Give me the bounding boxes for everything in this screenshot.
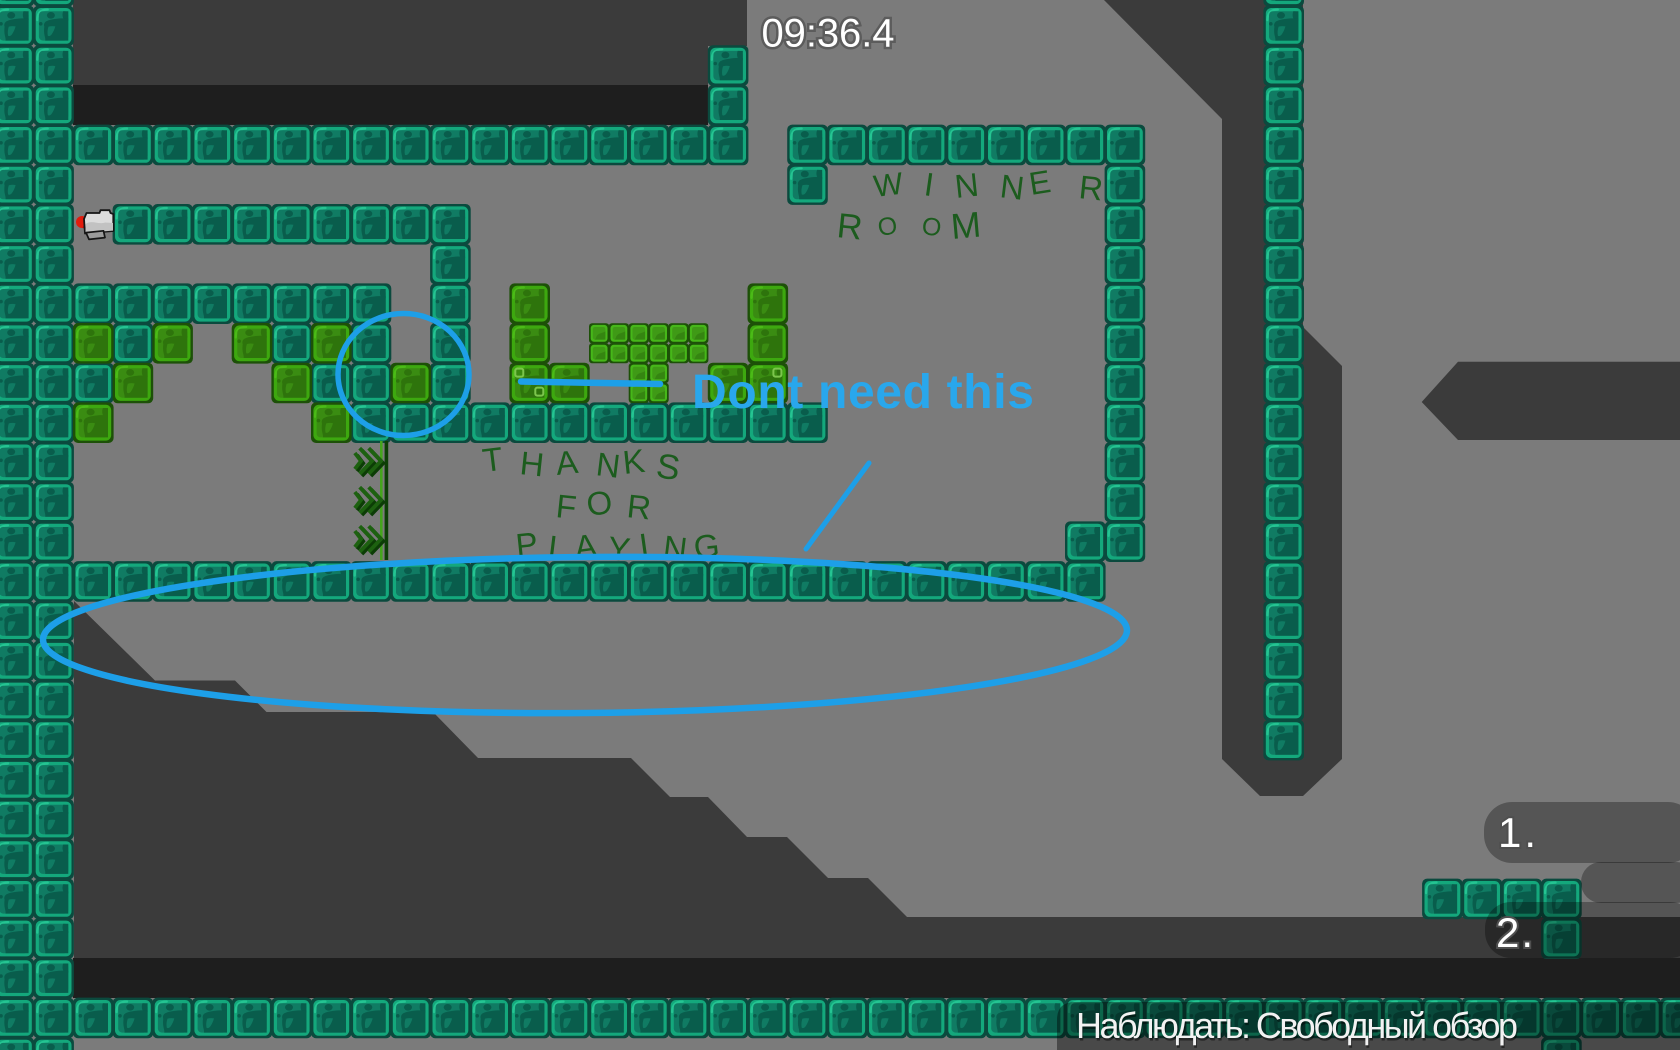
svg-text:N: N [661, 528, 689, 568]
svg-text:N: N [953, 166, 981, 205]
svg-text:O: O [920, 212, 943, 242]
svg-text:K: K [621, 442, 647, 481]
svg-text:M: M [949, 204, 982, 247]
svg-text:R: R [625, 487, 653, 526]
svg-text:Наблюдать: Свободный обзор: Наблюдать: Свободный обзор [1076, 1005, 1518, 1046]
svg-text:H: H [518, 444, 546, 483]
svg-text:F: F [554, 487, 578, 526]
svg-text:Y: Y [606, 529, 632, 568]
svg-text:09:36.4: 09:36.4 [762, 12, 895, 56]
svg-text:O: O [584, 483, 614, 523]
svg-text:Dont need this: Dont need this [692, 366, 1034, 419]
svg-text:R: R [1077, 168, 1105, 207]
svg-text:O: O [876, 212, 899, 242]
svg-text:W: W [872, 166, 906, 204]
svg-text:N: N [998, 167, 1026, 207]
svg-text:A: A [554, 443, 580, 482]
svg-text:R: R [835, 206, 864, 247]
svg-text:1.: 1. [1498, 809, 1539, 856]
svg-text:2.: 2. [1496, 909, 1535, 956]
svg-text:N: N [594, 445, 622, 485]
